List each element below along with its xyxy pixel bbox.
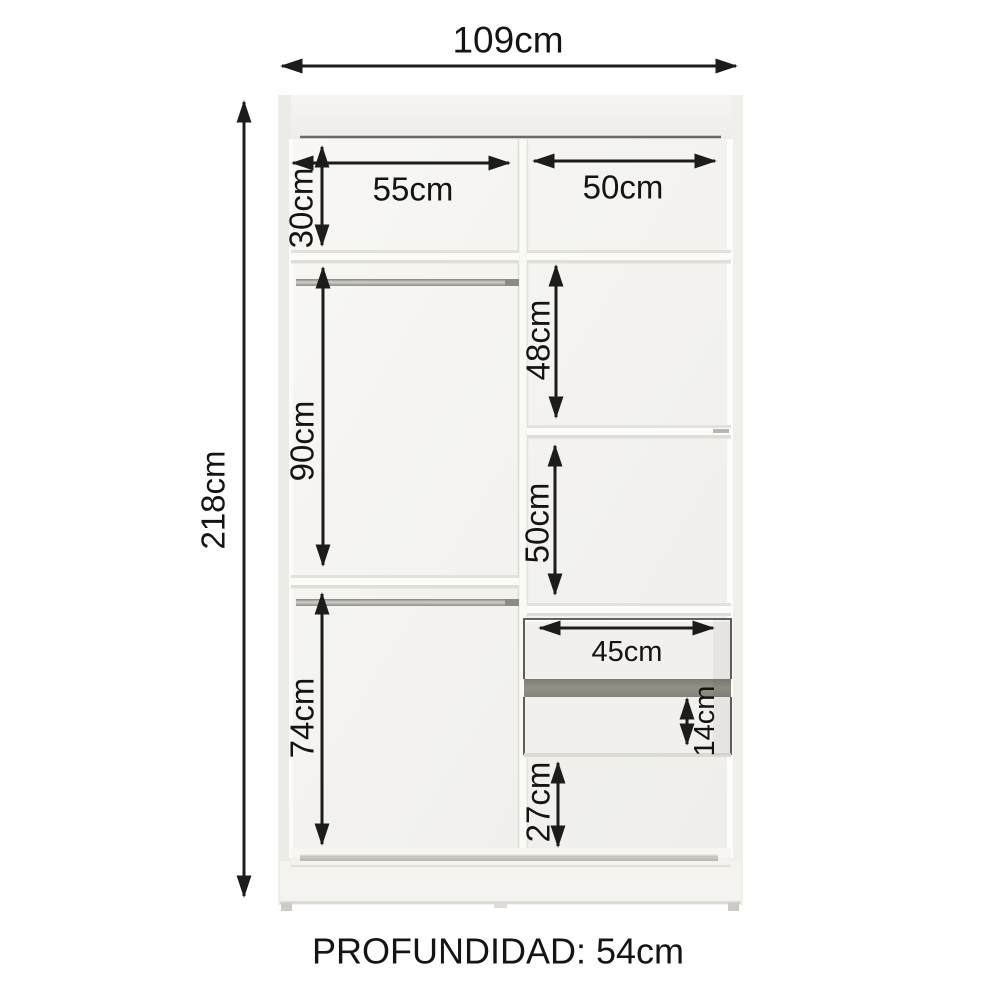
depth-note: PROFUNDIDAD: 54cm <box>312 931 684 972</box>
right-shelf-3 <box>527 603 731 616</box>
dim-label-right-upper-shelf-height: 48cm <box>520 300 557 381</box>
dim-label-right-section-width: 50cm <box>583 169 664 206</box>
dim-label-left-hanging-height: 90cm <box>284 401 321 482</box>
dimension-total-height: 218cm <box>195 102 245 896</box>
foot-right <box>728 903 739 911</box>
cabinet-base <box>280 848 741 911</box>
dim-label-right-middle-shelf-height: 50cm <box>519 483 556 564</box>
dim-label-top-shelf-height: 30cm <box>283 168 320 249</box>
dimension-bottom-section-height: 27cm <box>520 762 559 846</box>
dimension-total-width: 109cm <box>282 20 736 67</box>
left-mid-shelf <box>291 575 519 589</box>
top-shelf <box>291 250 731 264</box>
hanging-rod-upper <box>296 279 519 286</box>
foot-center <box>494 903 507 908</box>
dim-label-total-height: 218cm <box>195 450 232 549</box>
dim-label-total-width: 109cm <box>452 20 563 61</box>
wardrobe-dimension-diagram: 109cm 218cm 30cm 55cm 50cm 90cm 48cm 50c… <box>0 0 1000 1000</box>
cabinet-top-panel <box>278 95 743 139</box>
dim-label-left-lower-height: 74cm <box>284 678 321 759</box>
dimension-drawer-height: 14cm <box>687 686 721 757</box>
foot-left <box>281 903 292 911</box>
hanging-rod-upper-end <box>505 279 519 286</box>
hanging-rod-lower <box>296 599 519 606</box>
dim-label-bottom-section-height: 27cm <box>520 762 557 843</box>
dim-label-left-section-width: 55cm <box>373 171 454 208</box>
plinth <box>280 861 741 903</box>
cabinet <box>278 95 743 911</box>
right-shelf-2 <box>527 425 731 439</box>
dim-label-drawer-width: 45cm <box>592 636 663 668</box>
hanging-rod-lower-end <box>505 599 519 606</box>
dim-label-drawer-height: 14cm <box>689 686 721 757</box>
